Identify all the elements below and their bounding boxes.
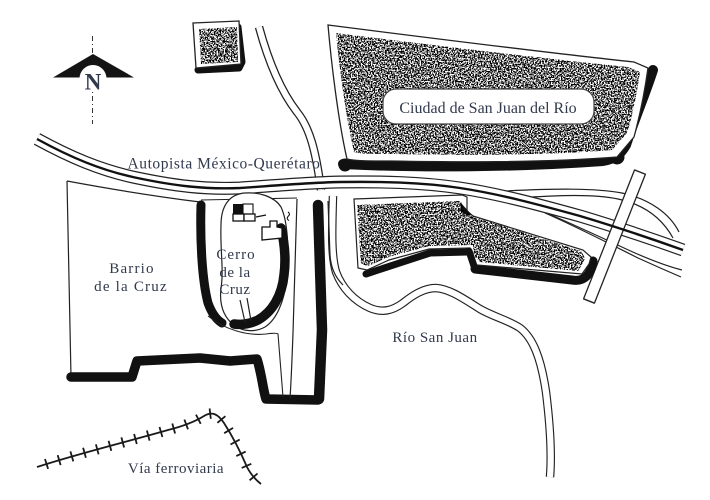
svg-text:Autopista México-Querétaro: Autopista México-Querétaro	[128, 156, 321, 173]
svg-text:Ciudad de San Juan del Río: Ciudad de San Juan del Río	[399, 100, 576, 117]
svg-text:Cruz: Cruz	[219, 282, 250, 298]
svg-text:Barrio: Barrio	[109, 261, 155, 277]
svg-text:de la: de la	[219, 265, 250, 281]
svg-text:N: N	[85, 70, 102, 95]
svg-text:de la Cruz: de la Cruz	[94, 279, 168, 295]
svg-text:Río San Juan: Río San Juan	[392, 330, 477, 346]
svg-text:Vía ferroviaria: Vía ferroviaria	[128, 461, 224, 477]
svg-text:Cerro: Cerro	[216, 247, 255, 263]
